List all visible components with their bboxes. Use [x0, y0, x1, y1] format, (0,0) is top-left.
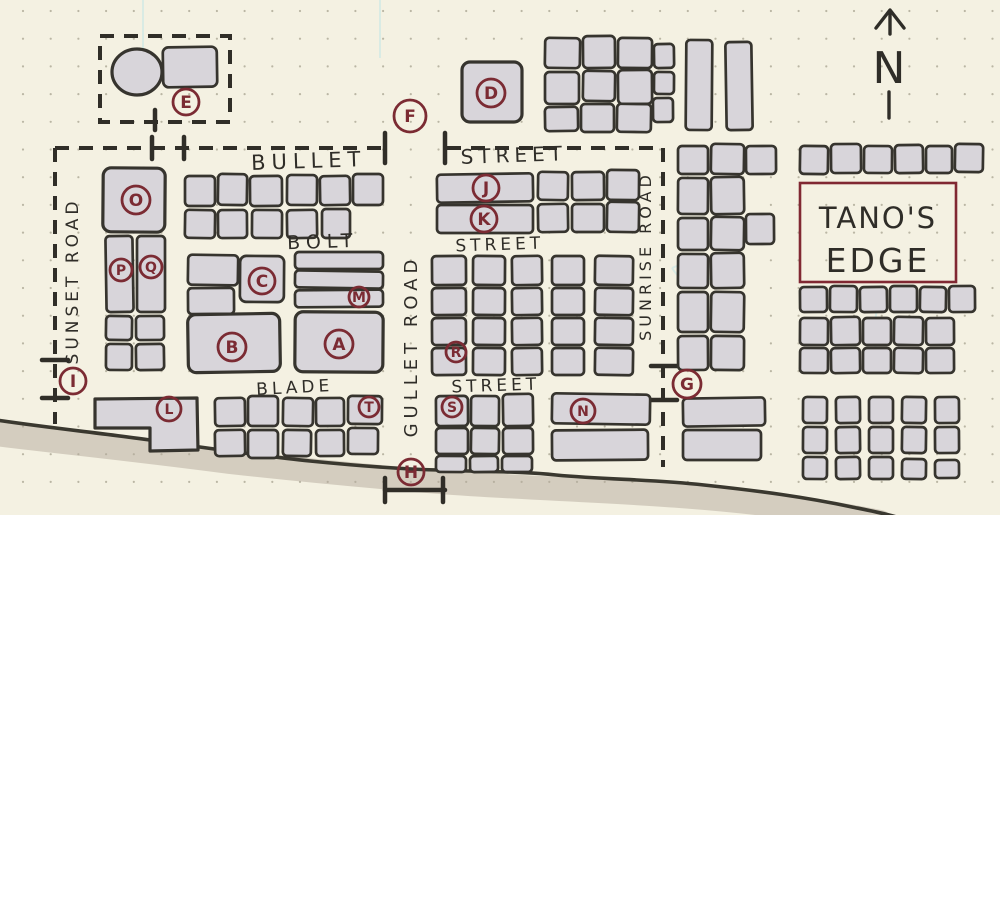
town-map-drawing: TANO'S EDGE BULLETSTREETBOLTSTREETBLADES… [0, 0, 1000, 520]
grid-dot [354, 93, 356, 95]
building [654, 72, 674, 94]
building [552, 430, 648, 461]
grid-dot [659, 259, 661, 261]
building [215, 430, 245, 456]
grid-dot [853, 38, 855, 40]
grid-dot [908, 93, 910, 95]
marker-letter-Q: Q [145, 260, 157, 276]
building [538, 172, 568, 200]
screenshot-root: TANO'S EDGE BULLETSTREETBOLTSTREETBLADES… [0, 0, 1000, 911]
grid-dot [50, 259, 52, 261]
building [926, 348, 954, 373]
building [711, 177, 745, 215]
grid-dot [964, 370, 966, 372]
grid-dot [22, 148, 24, 150]
building [935, 427, 959, 453]
building [683, 397, 765, 426]
building [503, 394, 533, 426]
grid-dot [22, 38, 24, 40]
grid-dot [659, 204, 661, 206]
grid-dot [327, 10, 329, 12]
building [471, 396, 499, 426]
grid-dot [991, 453, 993, 455]
grid-dot [50, 38, 52, 40]
grid-dot [410, 453, 412, 455]
building [320, 176, 350, 205]
grid-dot [825, 315, 827, 317]
grid-dot [714, 93, 716, 95]
grid-dot [991, 315, 993, 317]
marker-letter-J: J [482, 179, 489, 199]
marker-letter-D: D [484, 84, 498, 104]
grid-dot [548, 425, 550, 427]
title-line-1: TANO'S [818, 201, 937, 235]
grid-dot [742, 10, 744, 12]
grid-dot [188, 38, 190, 40]
building [470, 456, 498, 472]
grid-dot [991, 398, 993, 400]
marker-letter-E: E [180, 93, 192, 113]
grid-dot [991, 259, 993, 261]
grid-dot [798, 398, 800, 400]
grid-dot [160, 10, 162, 12]
grid-dot [770, 204, 772, 206]
marker-letter-L: L [165, 402, 174, 418]
title-line-2: EDGE [826, 241, 931, 280]
grid-dot [437, 93, 439, 95]
building [473, 256, 505, 285]
grid-dot [271, 121, 273, 123]
grid-dot [770, 453, 772, 455]
building [283, 398, 313, 426]
building [295, 270, 383, 288]
grid-dot [437, 38, 439, 40]
grid-dot [825, 121, 827, 123]
building [711, 253, 745, 289]
building [572, 172, 604, 200]
grid-dot [327, 93, 329, 95]
grid-dot [881, 315, 883, 317]
building [678, 254, 708, 288]
grid-dot [22, 398, 24, 400]
grid-dot [410, 232, 412, 234]
grid-dot [354, 65, 356, 67]
grid-dot [382, 425, 384, 427]
building [830, 286, 857, 312]
street-label: GULLET ROAD [401, 255, 422, 438]
grid-dot [770, 38, 772, 40]
building [653, 98, 673, 122]
grid-dot [50, 342, 52, 344]
building [583, 36, 615, 68]
grid-dot [50, 453, 52, 455]
building [746, 146, 776, 174]
building [512, 318, 542, 345]
building [503, 428, 533, 454]
grid-dot [77, 93, 79, 95]
grid-dot [991, 204, 993, 206]
grid-dot [133, 342, 135, 344]
building [935, 397, 959, 423]
grid-dot [437, 10, 439, 12]
grid-dot [465, 38, 467, 40]
building [902, 397, 926, 423]
grid-dot [936, 38, 938, 40]
grid-dot [964, 259, 966, 261]
grid-dot [77, 121, 79, 123]
building [136, 316, 164, 340]
grid-dot [908, 65, 910, 67]
grid-dot [548, 315, 550, 317]
grid-dot [991, 342, 993, 344]
grid-dot [798, 453, 800, 455]
building [895, 145, 923, 173]
grid-dot [354, 121, 356, 123]
grid-dot [410, 148, 412, 150]
grid-dot [576, 425, 578, 427]
grid-dot [410, 176, 412, 178]
grid-dot [964, 93, 966, 95]
grid-dot [798, 121, 800, 123]
grid-dot [410, 65, 412, 67]
building [473, 348, 505, 375]
grid-dot [22, 315, 24, 317]
grid-dot [105, 65, 107, 67]
grid-dot [991, 10, 993, 12]
grid-dot [991, 370, 993, 372]
building [545, 72, 579, 104]
building [595, 318, 633, 346]
grid-dot [853, 121, 855, 123]
building [106, 316, 132, 340]
building [353, 174, 383, 205]
grid-dot [548, 342, 550, 344]
building [581, 104, 614, 132]
street-label: STREET [451, 374, 541, 397]
grid-dot [770, 93, 772, 95]
grid-dot [798, 176, 800, 178]
building [894, 348, 923, 373]
grid-dot [881, 10, 883, 12]
building [348, 428, 378, 454]
grid-dot [548, 287, 550, 289]
building [800, 318, 828, 345]
building [316, 430, 344, 456]
building [869, 397, 893, 423]
grid-dot [964, 10, 966, 12]
grid-dot [714, 38, 716, 40]
grid-dot [105, 370, 107, 372]
marker-letter-M: M [352, 290, 366, 306]
grid-dot [770, 425, 772, 427]
marker-letter-P: P [116, 263, 126, 279]
grid-dot [22, 232, 24, 234]
grid-dot [50, 315, 52, 317]
grid-dot [548, 398, 550, 400]
grid-dot [271, 481, 273, 483]
grid-dot [964, 425, 966, 427]
building [869, 457, 893, 479]
grid-dot [50, 176, 52, 178]
marker-letter-B: B [226, 338, 239, 358]
grid-dot [77, 10, 79, 12]
building [287, 175, 317, 205]
building [471, 428, 499, 454]
grid-dot [770, 10, 772, 12]
grid-dot [936, 65, 938, 67]
building [436, 428, 468, 454]
grid-dot [327, 121, 329, 123]
grid-dot [881, 38, 883, 40]
grid-dot [382, 65, 384, 67]
grid-dot [798, 425, 800, 427]
grid-dot [908, 10, 910, 12]
grid-dot [770, 481, 772, 483]
building [831, 317, 860, 345]
grid-dot [437, 65, 439, 67]
grid-dot [936, 315, 938, 317]
building [949, 286, 975, 312]
marker-letter-H: H [404, 463, 418, 483]
building [686, 40, 713, 130]
grid-dot [631, 10, 633, 12]
building [248, 430, 278, 458]
grid-dot [22, 176, 24, 178]
marker-letter-A: A [332, 335, 346, 355]
grid-dot [659, 315, 661, 317]
grid-dot [382, 38, 384, 40]
building [106, 344, 132, 370]
grid-dot [798, 65, 800, 67]
building [432, 318, 466, 345]
marker-letter-K: K [477, 210, 491, 230]
building [654, 44, 674, 68]
grid-dot [964, 121, 966, 123]
grid-dot [216, 481, 218, 483]
grid-dot [244, 38, 246, 40]
building [432, 288, 466, 315]
grid-dot [77, 65, 79, 67]
grid-dot [382, 93, 384, 95]
marker-letter-G: G [680, 375, 694, 395]
grid-dot [22, 370, 24, 372]
grid-dot [354, 10, 356, 12]
grid-dot [50, 204, 52, 206]
building [803, 397, 827, 423]
grid-dot [299, 93, 301, 95]
grid-dot [299, 10, 301, 12]
grid-dot [188, 10, 190, 12]
building [248, 396, 278, 426]
grid-dot [659, 287, 661, 289]
grid-dot [825, 65, 827, 67]
grid-dot [659, 370, 661, 372]
grid-dot [908, 481, 910, 483]
grid-dot [991, 425, 993, 427]
grid-dot [437, 121, 439, 123]
grid-dot [798, 38, 800, 40]
grid-dot [576, 10, 578, 12]
grid-dot [22, 93, 24, 95]
grid-dot [991, 176, 993, 178]
building [803, 457, 827, 479]
grid-dot [299, 121, 301, 123]
grid-dot [964, 65, 966, 67]
grid-dot [133, 370, 135, 372]
building [803, 427, 827, 453]
grid-dot [991, 121, 993, 123]
building [572, 204, 604, 232]
grid-dot [271, 65, 273, 67]
grid-dot [77, 481, 79, 483]
marker-letter-R: R [451, 345, 462, 361]
marker-letter-I: I [70, 372, 76, 392]
grid-dot [825, 10, 827, 12]
grid-dot [493, 10, 495, 12]
grid-dot [936, 93, 938, 95]
grid-dot [770, 176, 772, 178]
grid-dot [714, 121, 716, 123]
building [188, 288, 234, 314]
marker-letter-S: S [447, 400, 457, 416]
street-label: SUNSET ROAD [63, 198, 83, 365]
grid-dot [908, 176, 910, 178]
grid-dot [991, 65, 993, 67]
building [185, 176, 215, 206]
grid-dot [798, 315, 800, 317]
grid-dot [714, 10, 716, 12]
building [617, 104, 651, 133]
building [800, 287, 827, 312]
building [218, 174, 247, 205]
grid-dot [244, 121, 246, 123]
grid-dot [936, 481, 938, 483]
building [894, 317, 923, 345]
grid-dot [825, 38, 827, 40]
building [545, 107, 578, 132]
grid-dot [936, 10, 938, 12]
grid-dot [160, 121, 162, 123]
grid-dot [22, 10, 24, 12]
grid-dot [659, 232, 661, 234]
grid-dot [521, 121, 523, 123]
marker-letter-N: N [577, 404, 589, 420]
building [607, 202, 639, 232]
grid-dot [714, 481, 716, 483]
grid-dot [244, 65, 246, 67]
grid-dot [853, 65, 855, 67]
grid-dot [991, 38, 993, 40]
building [552, 348, 584, 375]
grid-dot [216, 148, 218, 150]
grid-dot [964, 38, 966, 40]
grid-dot [244, 148, 246, 150]
grid-dot [382, 10, 384, 12]
grid-dot [964, 453, 966, 455]
building [552, 393, 650, 425]
building [711, 217, 745, 251]
building [860, 287, 887, 312]
grid-dot [659, 38, 661, 40]
grid-dot [50, 232, 52, 234]
grid-dot [936, 259, 938, 261]
grid-dot [188, 481, 190, 483]
grid-dot [825, 93, 827, 95]
grid-dot [22, 287, 24, 289]
building [920, 287, 946, 312]
building [512, 348, 542, 375]
building [926, 318, 954, 345]
grid-dot [659, 342, 661, 344]
building [432, 256, 466, 285]
grid-dot [659, 425, 661, 427]
grid-dot [659, 10, 661, 12]
building [902, 427, 926, 453]
reservoir-pond [112, 49, 162, 95]
grid-dot [493, 38, 495, 40]
grid-dot [133, 315, 135, 317]
grid-dot [991, 93, 993, 95]
grid-dot [853, 176, 855, 178]
grid-dot [50, 370, 52, 372]
grid-dot [770, 121, 772, 123]
grid-dot [77, 38, 79, 40]
grid-dot [770, 65, 772, 67]
grid-dot [881, 121, 883, 123]
building [800, 146, 828, 174]
grid-dot [216, 10, 218, 12]
grid-dot [327, 38, 329, 40]
grid-dot [548, 370, 550, 372]
grid-dot [825, 176, 827, 178]
building [188, 255, 238, 286]
grid-dot [382, 370, 384, 372]
grid-dot [244, 10, 246, 12]
building [800, 348, 828, 373]
building [136, 344, 164, 370]
grid-dot [50, 93, 52, 95]
grid-dot [770, 398, 772, 400]
grid-dot [964, 398, 966, 400]
building [250, 176, 282, 206]
grid-dot [271, 10, 273, 12]
grid-dot [410, 10, 412, 12]
grid-dot [631, 148, 633, 150]
grid-dot [742, 481, 744, 483]
building [678, 292, 708, 332]
grid-dot [105, 93, 107, 95]
grid-dot [991, 481, 993, 483]
grid-dot [853, 93, 855, 95]
building [215, 398, 245, 426]
grid-dot [798, 481, 800, 483]
grid-dot [659, 148, 661, 150]
grid-dot [991, 232, 993, 234]
grid-dot [521, 38, 523, 40]
grid-dot [991, 287, 993, 289]
grid-dot [521, 10, 523, 12]
grid-dot [714, 65, 716, 67]
grid-dot [964, 232, 966, 234]
grid-dot [216, 93, 218, 95]
building [836, 427, 860, 453]
grid-dot [659, 453, 661, 455]
building [831, 348, 860, 373]
grid-dot [964, 176, 966, 178]
street-label: BOLT [287, 230, 359, 254]
grid-dot [105, 481, 107, 483]
grid-dot [548, 259, 550, 261]
